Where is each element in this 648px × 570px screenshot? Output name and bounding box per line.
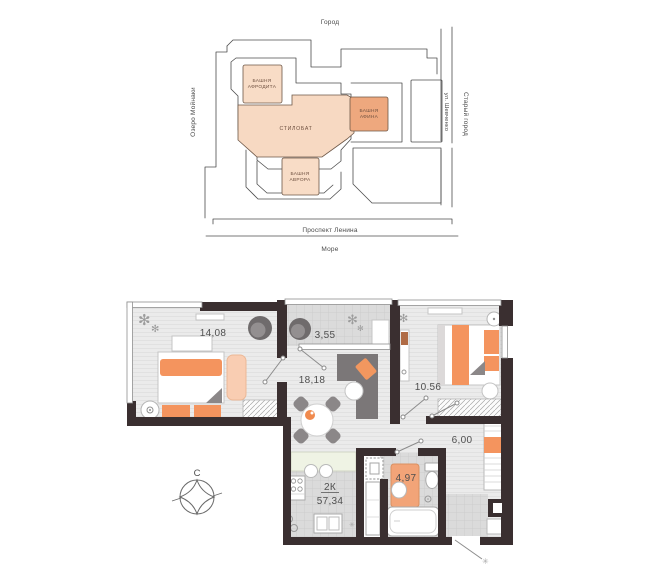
window [285, 299, 392, 305]
window [127, 302, 202, 308]
hall-cabinet-orange [484, 437, 503, 453]
building-avrora-label-2: АВРОРА [289, 177, 311, 183]
bed-1-bench-b [194, 405, 221, 418]
bath-cabinet [366, 482, 380, 535]
window-sill-1 [196, 314, 224, 320]
room-area-bedroom-1: 14,08 [200, 328, 227, 339]
compass-circle [180, 480, 214, 514]
window-sill-2 [428, 308, 462, 314]
washing-machine [366, 458, 383, 479]
room-area-hallway: 6,00 [452, 435, 473, 446]
bed-1-pillows [160, 359, 222, 376]
floorplan-page: БАШНЯ АФРОДИТА СТИЛОБАТ БАШНЯ АФИНА БАШН… [0, 0, 648, 570]
plan-canvas: БАШНЯ АФРОДИТА СТИЛОБАТ БАШНЯ АФИНА БАШН… [0, 0, 648, 570]
building-afrodita-label-1: БАШНЯ [252, 78, 271, 84]
building-afrodita-label-2: АФРОДИТА [248, 84, 277, 90]
table-decor [305, 410, 315, 420]
apartment-type-label: 2К [324, 482, 336, 493]
map-label-avenue: Проспект Ленина [302, 227, 357, 234]
hall-wardrobe [484, 420, 503, 490]
bed-2-edge [438, 325, 445, 385]
bed-2-pillow-b [484, 356, 499, 371]
building-afina-label-1: БАШНЯ [359, 108, 378, 114]
utility-shaft [493, 503, 502, 513]
window [127, 302, 133, 403]
room-area-loggia: 3,55 [315, 330, 336, 341]
table-decor-dot [311, 412, 314, 415]
plant-icon: ✻ [138, 312, 151, 329]
dining-table [301, 404, 333, 436]
sink-basin-right [320, 465, 333, 478]
compass: С [172, 468, 222, 514]
building-afrodita [243, 65, 282, 103]
room-area-bathroom: 4,97 [396, 473, 417, 484]
bed-2-pillow-a [484, 330, 499, 354]
bed-1-bench-a [162, 405, 190, 418]
toilet-bowl [426, 472, 438, 489]
window [299, 344, 390, 350]
plant-icon: ✻ [357, 324, 364, 333]
site-map: БАШНЯ АФРОДИТА СТИЛОБАТ БАШНЯ АФИНА БАШН… [189, 19, 470, 253]
sink-basin-left [305, 465, 318, 478]
building-stylobate-label: СТИЛОБАТ [279, 126, 312, 132]
chaise [227, 355, 246, 400]
building-afina-label-2: АФИНА [360, 114, 379, 120]
toilet-tank [425, 463, 439, 471]
compass-tick-east [213, 493, 222, 496]
total-area-label: 57,34 [317, 496, 344, 507]
room-area-bedroom-2: 10.56 [415, 382, 442, 393]
door-marker-icon: ✳ [482, 557, 489, 566]
pouf [482, 383, 498, 399]
wash-basin [392, 482, 407, 498]
desk-shelf [401, 332, 408, 345]
drain-dot [427, 498, 429, 500]
building-avrora-label-1: БАШНЯ [290, 171, 309, 177]
vent-icon: ✳ [349, 521, 355, 529]
map-label-sea: Море [321, 246, 338, 253]
map-label-lake: Озеро Мойнаки [189, 87, 197, 137]
map-label-street-shevchenko: ул. Шевченко [443, 93, 449, 131]
coffee-table [345, 382, 363, 400]
floor-plan: ✻ ✻ ✻ ✻ [127, 299, 513, 566]
armchair-2-seat [291, 324, 305, 338]
armchair-1-seat [251, 323, 266, 338]
plant-icon: ✻ [151, 324, 159, 335]
map-label-city: Город [321, 19, 340, 26]
room-area-living: 18,18 [299, 375, 326, 386]
compass-tick-west [172, 498, 181, 501]
ceiling-lamp-dot [493, 318, 495, 320]
compass-north-label: С [194, 468, 201, 479]
bed-2-blanket [452, 325, 469, 385]
building-afina [350, 97, 388, 131]
floor-lamp-dot [149, 409, 151, 411]
map-label-old-town: Старый город [462, 92, 470, 136]
window [398, 300, 501, 306]
window [502, 326, 508, 358]
plant-icon: ✻ [399, 313, 408, 325]
